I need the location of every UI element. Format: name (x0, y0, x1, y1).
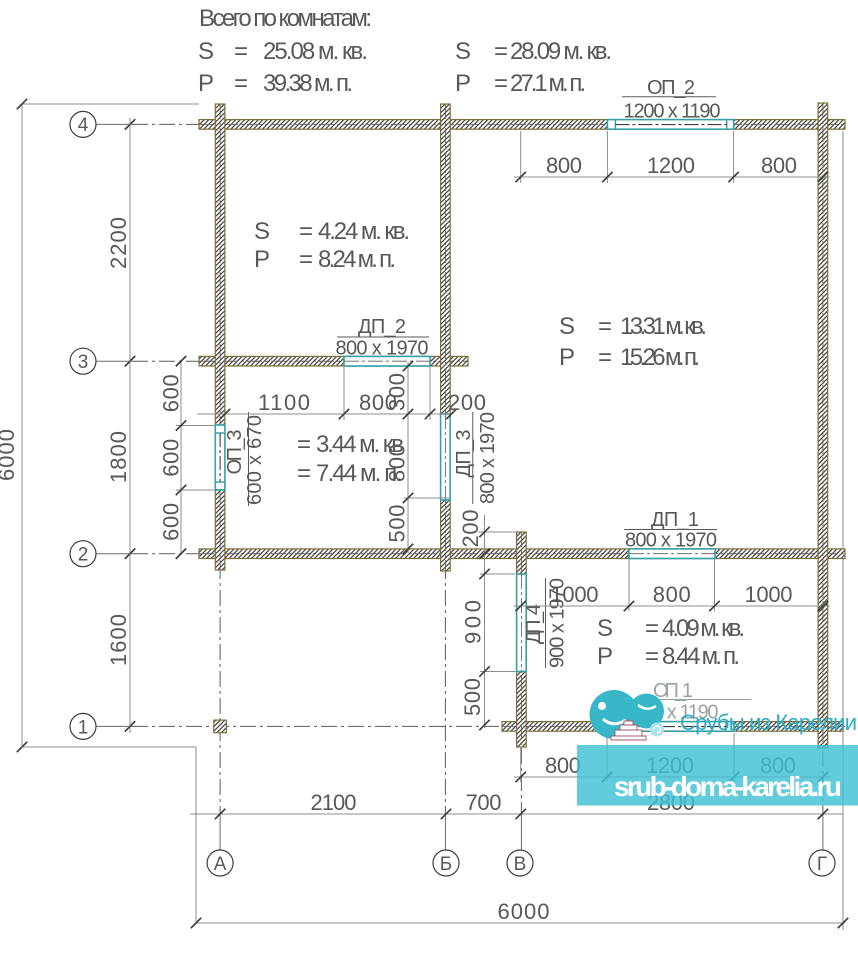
svg-text:2: 2 (78, 545, 89, 566)
svg-text:4: 4 (78, 115, 89, 136)
svg-text:Всего по комнатам:: Всего по комнатам: (199, 5, 372, 32)
svg-text:200: 200 (448, 390, 486, 415)
svg-text:6000: 6000 (0, 429, 19, 481)
svg-text:6000: 6000 (498, 899, 550, 924)
svg-text:800: 800 (545, 753, 581, 778)
svg-text:200: 200 (458, 510, 483, 548)
svg-text:2100: 2100 (311, 790, 357, 815)
svg-text:1: 1 (78, 717, 89, 738)
svg-text:ДП_4: ДП_4 (523, 604, 545, 644)
svg-text:ДП_2: ДП_2 (358, 316, 406, 338)
svg-text:1100: 1100 (258, 390, 310, 415)
svg-text:1200: 1200 (647, 153, 695, 178)
svg-text:800 х 1970: 800 х 1970 (336, 338, 429, 360)
svg-text:1000: 1000 (745, 582, 793, 607)
svg-text:500: 500 (460, 678, 485, 716)
svg-text:А: А (214, 854, 227, 875)
svg-text:800: 800 (546, 153, 582, 178)
svg-text:800 х 1970: 800 х 1970 (477, 412, 499, 504)
svg-text:700: 700 (466, 790, 502, 815)
svg-text:600 х 670: 600 х 670 (244, 415, 266, 505)
svg-text:ОП_3: ОП_3 (224, 430, 246, 475)
svg-text:ДП_1: ДП_1 (651, 509, 699, 531)
svg-text:ОП_2: ОП_2 (647, 77, 695, 99)
svg-text:ОП_1: ОП_1 (653, 680, 693, 702)
svg-text:600: 600 (159, 374, 184, 412)
svg-text:1200 х 1190: 1200 х 1190 (624, 101, 721, 123)
svg-text:Г: Г (817, 854, 827, 875)
svg-text:Срубы из Карелии: Срубы из Карелии (680, 710, 857, 735)
svg-text:500: 500 (385, 505, 410, 543)
svg-text:В: В (514, 854, 527, 875)
svg-text:800: 800 (653, 582, 691, 607)
svg-text:800: 800 (385, 444, 410, 482)
svg-text:800 х 1970: 800 х 1970 (625, 530, 717, 552)
svg-text:600: 600 (159, 439, 184, 477)
svg-text:3: 3 (78, 352, 89, 373)
svg-text:srub-doma-karelia.ru: srub-doma-karelia.ru (614, 771, 842, 802)
svg-text:Б: Б (440, 854, 452, 875)
svg-text:800: 800 (761, 153, 797, 178)
svg-text:300: 300 (385, 373, 410, 411)
svg-text:1000: 1000 (551, 582, 599, 607)
svg-text:1800: 1800 (106, 431, 131, 483)
svg-text:2200: 2200 (106, 217, 131, 269)
svg-text:600: 600 (159, 503, 184, 541)
svg-text:ДП_3: ДП_3 (453, 430, 475, 478)
svg-text:1600: 1600 (106, 614, 131, 666)
svg-text:900: 900 (461, 600, 486, 644)
